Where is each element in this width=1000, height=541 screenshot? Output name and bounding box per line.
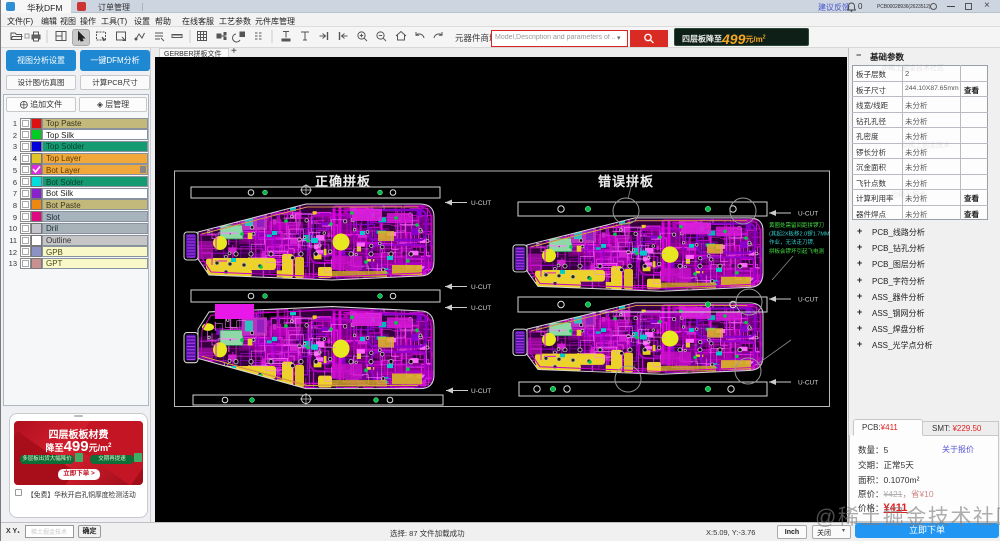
svg-text:U-CUT: U-CUT bbox=[798, 380, 818, 387]
svg-text:U-CUT: U-CUT bbox=[798, 297, 818, 304]
svg-text:U-CUT: U-CUT bbox=[471, 305, 491, 312]
svg-text:(其起2X板移2.0锣1.7MM: (其起2X板移2.0锣1.7MM bbox=[769, 230, 830, 238]
svg-text:U-CUT: U-CUT bbox=[798, 211, 818, 218]
svg-text:错误拼板: 错误拼板 bbox=[598, 174, 654, 189]
svg-text:U-CUT: U-CUT bbox=[471, 388, 491, 395]
svg-text:U-CUT: U-CUT bbox=[471, 200, 491, 207]
svg-text:拼板会锣坏引起飞电测: 拼板会锣坏引起飞电测 bbox=[769, 247, 825, 255]
svg-text:黄圈处需留间距拼锣刀: 黄圈处需留间距拼锣刀 bbox=[769, 221, 824, 229]
svg-text:U-CUT: U-CUT bbox=[471, 284, 491, 291]
svg-text:作业，无法走刀锣,: 作业，无法走刀锣, bbox=[769, 238, 815, 246]
